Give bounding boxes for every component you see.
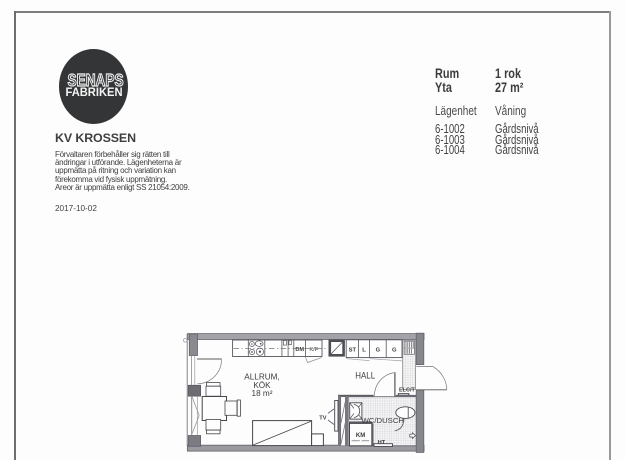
svg-text:DM: DM — [295, 347, 304, 353]
svg-text:ST: ST — [349, 347, 357, 353]
svg-text:HALL: HALL — [355, 371, 375, 381]
svg-text:G: G — [392, 347, 397, 353]
svg-text:18 m²: 18 m² — [252, 389, 273, 398]
svg-text:WC/DUSCH: WC/DUSCH — [362, 416, 405, 425]
svg-text:L: L — [362, 347, 366, 353]
svg-text:K/F: K/F — [309, 347, 318, 353]
svg-text:ELC/T: ELC/T — [399, 388, 416, 394]
svg-text:G: G — [376, 347, 381, 353]
svg-text:TV: TV — [319, 415, 326, 421]
svg-text:KM: KM — [356, 433, 365, 439]
